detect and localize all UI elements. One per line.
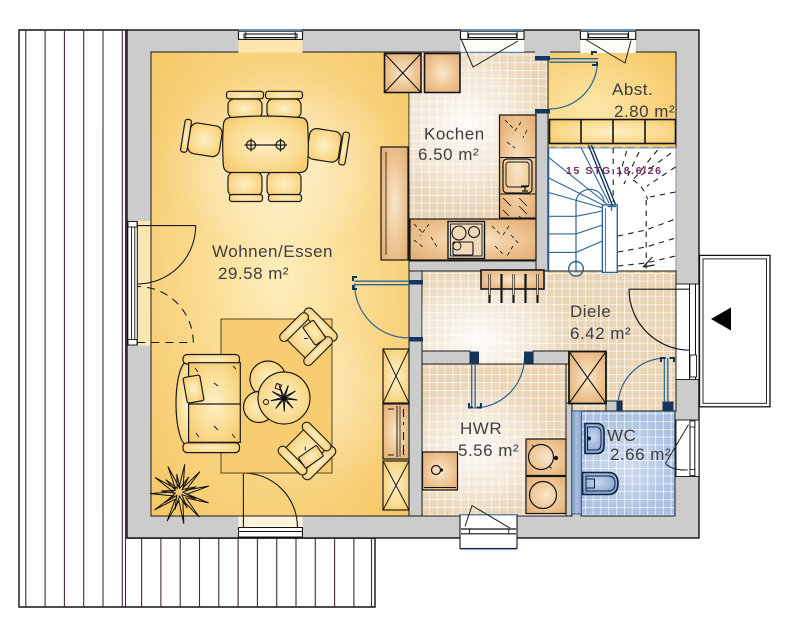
svg-text:2.66 m²: 2.66 m² <box>610 445 671 464</box>
svg-text:15 STG 18.6/26: 15 STG 18.6/26 <box>566 165 663 177</box>
svg-text:Abst.: Abst. <box>612 80 653 99</box>
svg-text:WC: WC <box>607 426 636 445</box>
svg-text:Diele: Diele <box>570 302 611 321</box>
svg-text:6.50 m²: 6.50 m² <box>418 145 479 164</box>
svg-text:6.42 m²: 6.42 m² <box>570 324 631 343</box>
svg-text:5.56 m²: 5.56 m² <box>458 441 519 460</box>
svg-text:HWR: HWR <box>460 419 502 438</box>
svg-text:2.80 m²: 2.80 m² <box>614 102 675 121</box>
svg-text:29.58 m²: 29.58 m² <box>218 264 289 283</box>
svg-text:Wohnen/Essen: Wohnen/Essen <box>212 242 333 261</box>
svg-text:Kochen: Kochen <box>424 125 485 144</box>
